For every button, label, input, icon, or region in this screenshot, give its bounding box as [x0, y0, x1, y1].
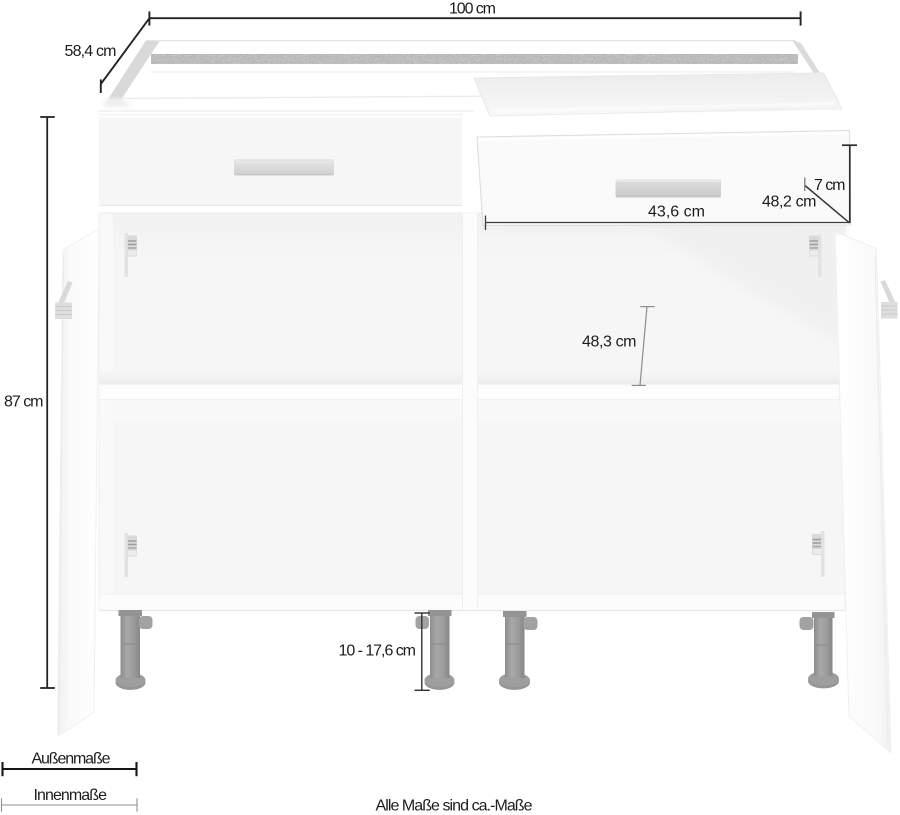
svg-text:Innenmaße: Innenmaße [34, 787, 108, 804]
svg-text:43,6 cm: 43,6 cm [648, 204, 705, 221]
svg-text:Außenmaße: Außenmaße [32, 751, 111, 768]
svg-text:Alle Maße sind ca.-Maße: Alle Maße sind ca.-Maße [376, 798, 533, 815]
svg-text:100 cm: 100 cm [449, 1, 496, 18]
svg-text:48,3 cm: 48,3 cm [582, 334, 637, 351]
svg-text:7 cm: 7 cm [814, 177, 846, 194]
svg-text:87 cm: 87 cm [4, 394, 44, 411]
svg-text:48,2 cm: 48,2 cm [762, 194, 817, 211]
svg-text:58,4 cm: 58,4 cm [65, 43, 117, 60]
svg-text:10 - 17,6 cm: 10 - 17,6 cm [339, 643, 417, 660]
